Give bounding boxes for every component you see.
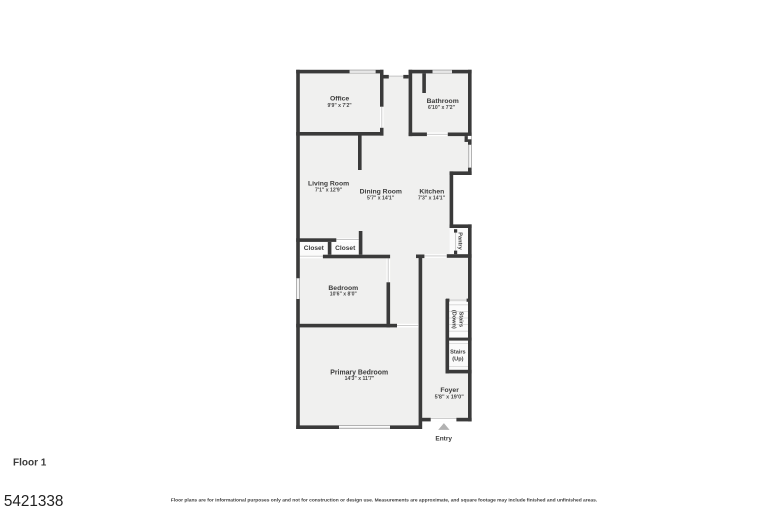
svg-text:Bathroom: Bathroom bbox=[427, 98, 459, 105]
svg-text:Kitchen: Kitchen bbox=[419, 188, 444, 195]
svg-text:Living Room: Living Room bbox=[308, 180, 349, 187]
svg-text:6'10" x 7'2": 6'10" x 7'2" bbox=[428, 105, 456, 111]
svg-text:Entry: Entry bbox=[435, 436, 452, 443]
svg-text:5'8" x 19'0": 5'8" x 19'0" bbox=[435, 394, 465, 400]
svg-text:Stairs: Stairs bbox=[450, 350, 466, 356]
svg-text:9'9" x 7'2": 9'9" x 7'2" bbox=[327, 103, 352, 109]
svg-text:Closet: Closet bbox=[304, 245, 325, 252]
svg-text:7'3" x 14'1": 7'3" x 14'1" bbox=[418, 195, 446, 201]
svg-text:10'6" x 8'0": 10'6" x 8'0" bbox=[330, 292, 358, 298]
svg-text:Closet: Closet bbox=[335, 245, 356, 252]
svg-text:5421338: 5421338 bbox=[4, 493, 64, 510]
svg-text:5'7" x 14'1": 5'7" x 14'1" bbox=[367, 195, 395, 201]
svg-text:Dining Room: Dining Room bbox=[360, 188, 402, 195]
svg-text:Pantry: Pantry bbox=[456, 232, 462, 250]
svg-text:(Down): (Down) bbox=[450, 310, 456, 329]
svg-text:Floor 1: Floor 1 bbox=[13, 457, 47, 468]
svg-text:(Up): (Up) bbox=[452, 357, 463, 363]
svg-text:Stairs: Stairs bbox=[457, 312, 463, 328]
svg-text:14'3" x 11'7": 14'3" x 11'7" bbox=[345, 376, 375, 382]
svg-text:Foyer: Foyer bbox=[440, 387, 459, 394]
svg-text:Floor plans are for informatio: Floor plans are for informational purpos… bbox=[171, 498, 598, 504]
svg-text:7'1" x 12'9": 7'1" x 12'9" bbox=[315, 188, 343, 194]
svg-text:Office: Office bbox=[330, 96, 349, 103]
